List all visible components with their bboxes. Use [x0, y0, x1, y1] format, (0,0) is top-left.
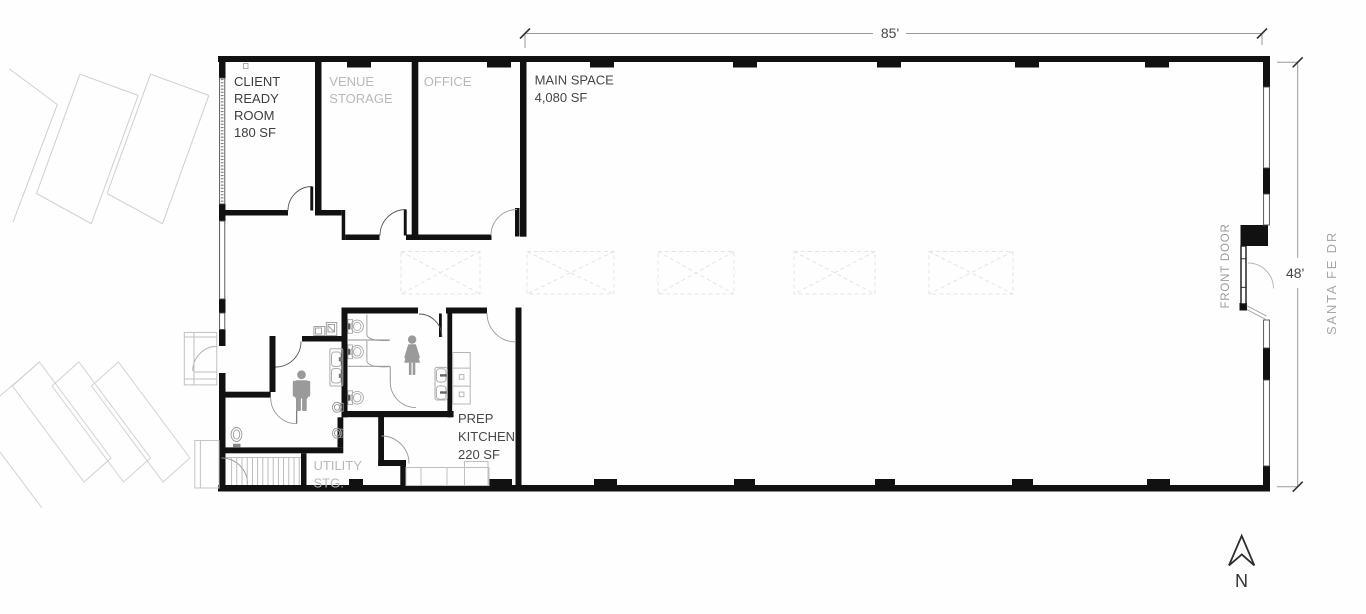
svg-text:VENUE: VENUE: [329, 74, 374, 89]
svg-text:STORAGE: STORAGE: [329, 91, 393, 106]
svg-text:N: N: [1235, 571, 1248, 591]
svg-text:180 SF: 180 SF: [234, 125, 276, 140]
svg-text:SANTA FE DR: SANTA FE DR: [1324, 231, 1339, 335]
svg-text:OFFICE: OFFICE: [424, 74, 472, 89]
svg-text:48': 48': [1286, 265, 1304, 281]
svg-text:UTILITY: UTILITY: [314, 458, 363, 473]
svg-text:4,080 SF: 4,080 SF: [535, 90, 588, 105]
svg-text:CLIENT: CLIENT: [234, 74, 280, 89]
svg-text:ROOM: ROOM: [234, 108, 274, 123]
svg-text:85': 85': [881, 25, 899, 41]
svg-text:READY: READY: [234, 91, 279, 106]
svg-text:MAIN SPACE: MAIN SPACE: [535, 73, 615, 88]
svg-text:220 SF: 220 SF: [458, 447, 500, 462]
svg-text:STG.: STG.: [314, 476, 344, 491]
svg-text:FRONT DOOR: FRONT DOOR: [1220, 223, 1232, 308]
svg-text:PREP: PREP: [458, 411, 493, 426]
svg-text:KITCHEN: KITCHEN: [458, 429, 515, 444]
